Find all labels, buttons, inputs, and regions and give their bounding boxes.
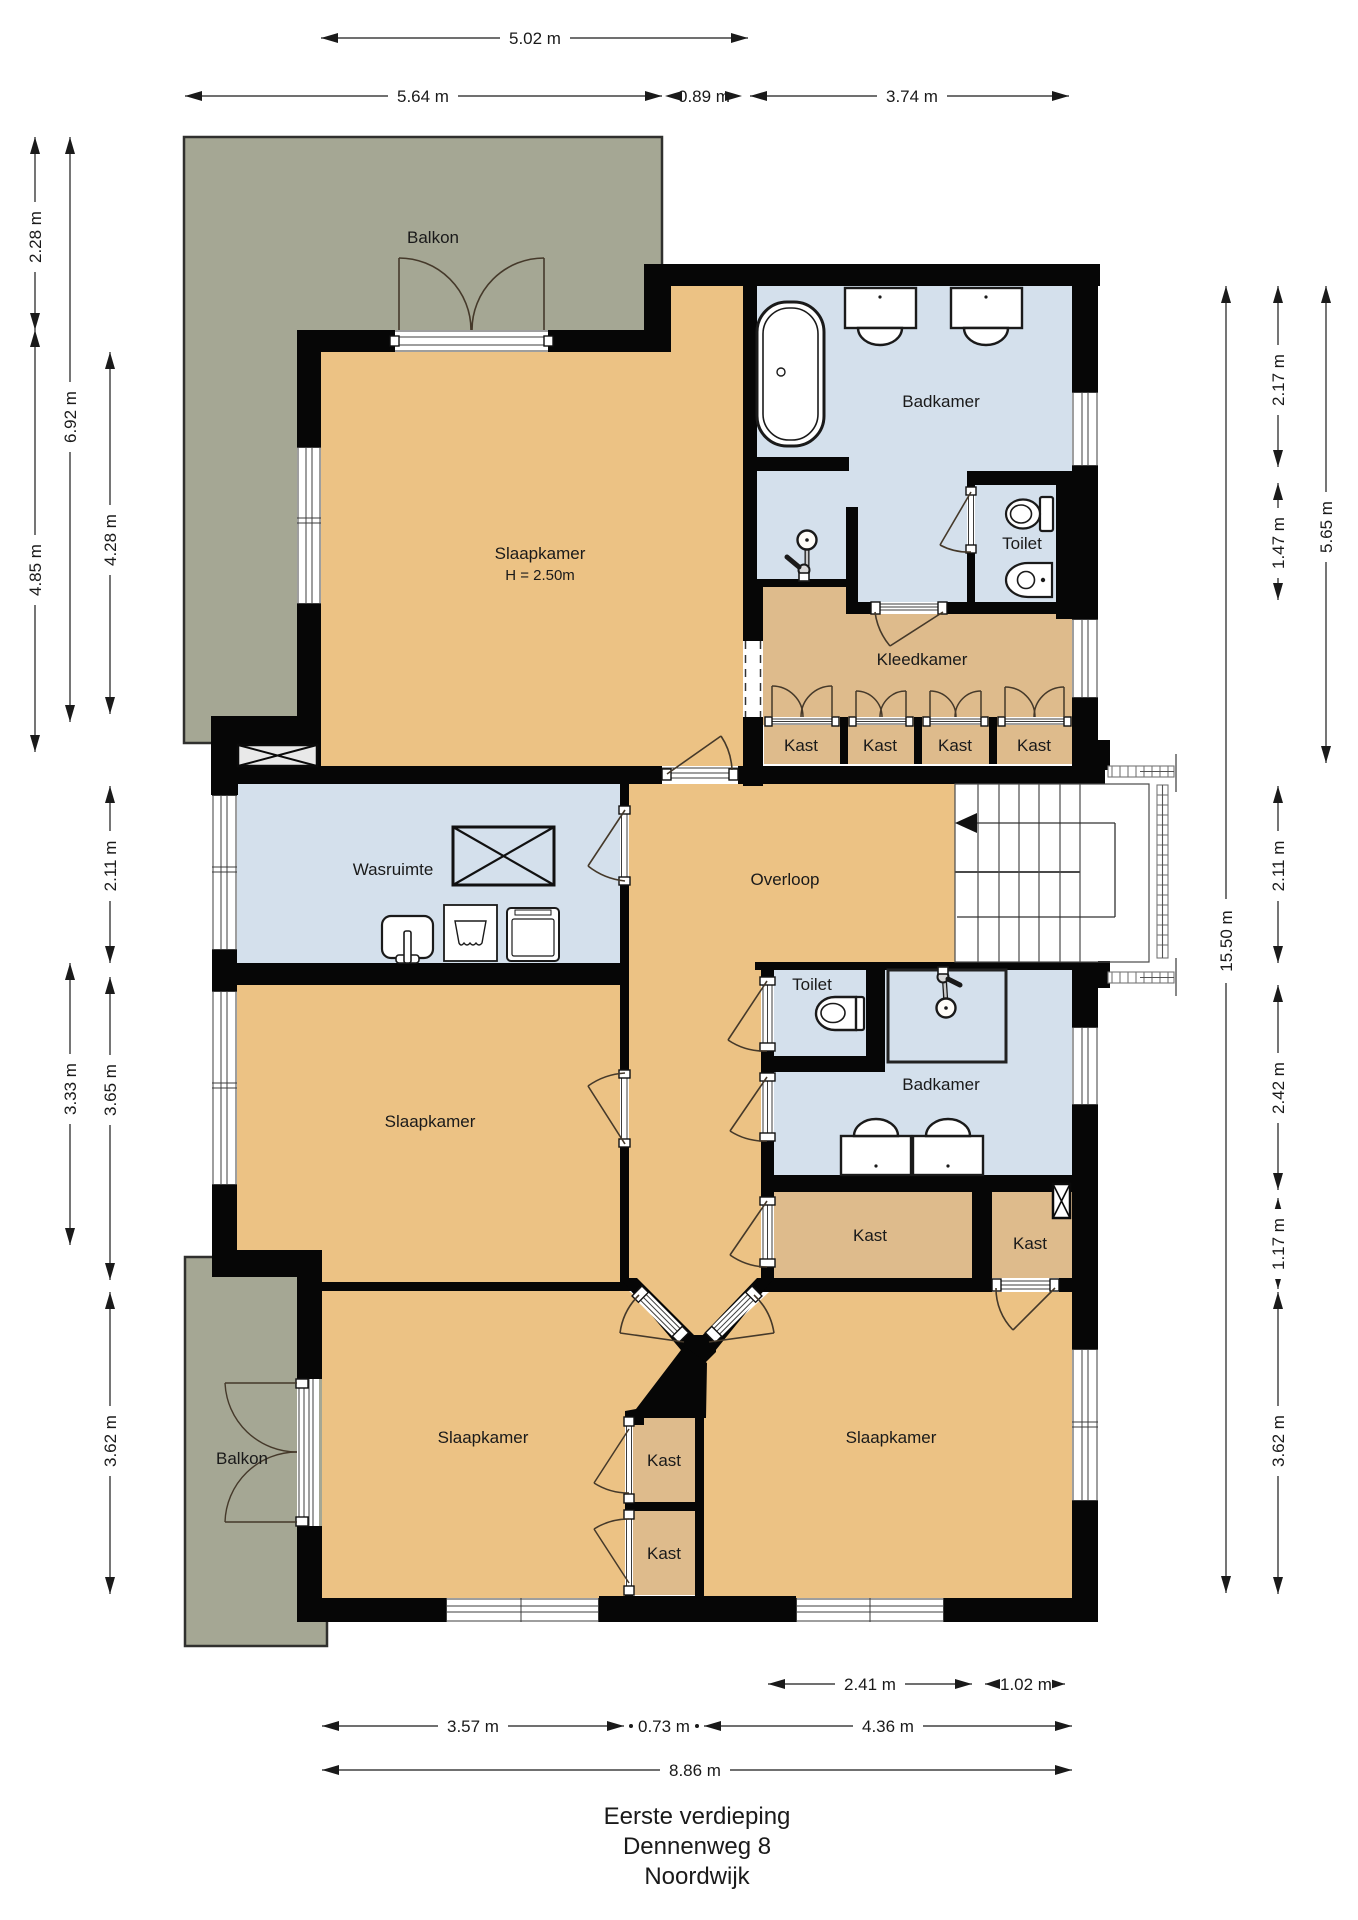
svg-text:Slaapkamer: Slaapkamer — [438, 1428, 529, 1447]
svg-text:Kast: Kast — [647, 1451, 681, 1470]
svg-text:Kast: Kast — [784, 736, 818, 755]
svg-text:Toilet: Toilet — [1002, 534, 1042, 553]
svg-text:Kast: Kast — [853, 1226, 887, 1245]
svg-text:4.85 m: 4.85 m — [26, 544, 45, 596]
svg-text:4.28 m: 4.28 m — [101, 514, 120, 566]
svg-text:2.11 m: 2.11 m — [1269, 841, 1288, 892]
svg-text:5.64 m: 5.64 m — [397, 87, 449, 106]
svg-text:Eerste verdieping: Eerste verdieping — [604, 1803, 791, 1830]
svg-text:H = 2.50m: H = 2.50m — [505, 567, 575, 584]
svg-text:4.36 m: 4.36 m — [862, 1717, 914, 1736]
svg-text:8.86 m: 8.86 m — [669, 1761, 721, 1780]
svg-text:3.57 m: 3.57 m — [447, 1717, 499, 1736]
svg-text:Noordwijk: Noordwijk — [644, 1863, 750, 1890]
svg-text:3.62 m: 3.62 m — [1269, 1415, 1288, 1467]
svg-text:2.41 m: 2.41 m — [844, 1675, 896, 1694]
svg-text:1.17 m: 1.17 m — [1269, 1218, 1288, 1270]
svg-text:Slaapkamer: Slaapkamer — [495, 544, 586, 563]
svg-text:3.62 m: 3.62 m — [101, 1415, 120, 1467]
svg-text:3.74 m: 3.74 m — [886, 87, 938, 106]
svg-text:3.65 m: 3.65 m — [101, 1064, 120, 1116]
svg-text:Balkon: Balkon — [216, 1449, 268, 1468]
svg-text:15.50 m: 15.50 m — [1217, 910, 1236, 971]
svg-text:Dennenweg 8: Dennenweg 8 — [623, 1833, 771, 1860]
svg-text:2.17 m: 2.17 m — [1269, 354, 1288, 406]
svg-text:5.02 m: 5.02 m — [509, 29, 561, 48]
svg-text:Badkamer: Badkamer — [902, 1075, 980, 1094]
svg-text:Kast: Kast — [1013, 1234, 1047, 1253]
svg-text:0.89 m: 0.89 m — [678, 87, 730, 106]
svg-text:Kast: Kast — [938, 736, 972, 755]
svg-text:Kleedkamer: Kleedkamer — [877, 650, 968, 669]
svg-text:5.65 m: 5.65 m — [1317, 501, 1336, 553]
svg-text:Wasruimte: Wasruimte — [353, 860, 434, 879]
svg-text:Toilet: Toilet — [792, 975, 832, 994]
svg-text:1.47 m: 1.47 m — [1269, 517, 1288, 569]
svg-text:2.28 m: 2.28 m — [26, 211, 45, 263]
svg-text:1.02 m: 1.02 m — [1000, 1675, 1052, 1694]
svg-text:Kast: Kast — [647, 1544, 681, 1563]
svg-text:Kast: Kast — [1017, 736, 1051, 755]
svg-text:Slaapkamer: Slaapkamer — [846, 1428, 937, 1447]
svg-text:Kast: Kast — [863, 736, 897, 755]
svg-text:Badkamer: Badkamer — [902, 392, 980, 411]
svg-text:Balkon: Balkon — [407, 228, 459, 247]
svg-text:Overloop: Overloop — [751, 870, 820, 889]
svg-text:Slaapkamer: Slaapkamer — [385, 1112, 476, 1131]
svg-text:3.33 m: 3.33 m — [61, 1063, 80, 1115]
svg-text:2.11 m: 2.11 m — [101, 841, 120, 892]
svg-text:2.42 m: 2.42 m — [1269, 1062, 1288, 1114]
svg-text:6.92 m: 6.92 m — [61, 391, 80, 443]
svg-text:0.73 m: 0.73 m — [638, 1717, 690, 1736]
